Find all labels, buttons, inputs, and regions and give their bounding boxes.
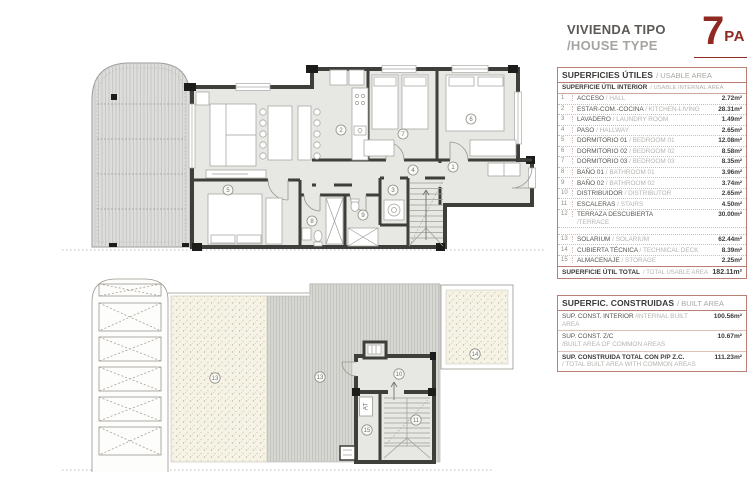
row-name: DORMITORIO 02 / BEDROOM 02	[577, 148, 706, 155]
built-area-table: SUPERFIC. CONSTRUIDAS / BUILT AREA SUP. …	[557, 295, 747, 372]
room-label-living: 2	[336, 125, 346, 135]
row-name: BAÑO 02 / BATHROOM 02	[577, 180, 706, 187]
row-value: 8.58m²	[706, 148, 742, 155]
row-name: SOLARIUM / SOLARIUM	[577, 236, 706, 243]
column	[182, 243, 189, 247]
built-area-row: SUP. CONSTRUIDA TOTAL CON P/P Z.C. / TOT…	[558, 352, 746, 371]
row-name-en: / TECHNICAL DECK	[640, 247, 699, 254]
area-row: 4 PASO / HALLWAY 2.65m²	[558, 126, 746, 137]
row-value: 3.74m²	[706, 180, 742, 187]
tv-cabinet	[206, 170, 266, 178]
area-row: 7 DORMITORIO 03 / BEDROOM 03 8.35m²	[558, 157, 746, 168]
row-name-es: TERRAZA DESCUBIERTA	[577, 211, 653, 218]
area-row: 12 TERRAZA DESCUBIERTA /TERRACE 30.00m²	[558, 210, 746, 228]
row-name-en: / BEDROOM 02	[629, 148, 674, 155]
entry-closet	[488, 163, 520, 176]
row-number: 6	[561, 148, 573, 154]
row-name-es: SUP. CONST. INTERIOR	[562, 313, 634, 320]
row-name-en: / HALL	[606, 95, 626, 102]
area-row: 11 ESCALERAS / STAIRS 4.50m²	[558, 199, 746, 210]
row-number: 9	[561, 180, 573, 186]
terrace-deck	[92, 63, 190, 247]
row-name-es: DORMITORIO 01	[577, 137, 627, 144]
row-number: 12	[561, 211, 573, 217]
room-label-storage: 15	[362, 425, 372, 435]
row-value: 8.39m²	[706, 247, 742, 254]
row-name: DORMITORIO 01 / BEDROOM 01	[577, 137, 706, 144]
unit-number: 7 PA	[702, 14, 745, 48]
usable-area-table-subtitle: SUPERFICIE ÚTIL INTERIOR / USABLE INTERN…	[558, 83, 746, 94]
svg-text:11: 11	[413, 418, 420, 424]
row-name-es: PASO	[577, 127, 594, 134]
row-name-es: DORMITORIO 02	[577, 148, 627, 155]
row-value: 10.67m²	[702, 333, 742, 340]
row-number: 7	[561, 158, 573, 164]
row-name: ESCALERAS / STAIRS	[577, 201, 706, 208]
row-value: 4.50m²	[706, 201, 742, 208]
row-name-en: / BEDROOM 01	[629, 137, 674, 144]
area-row: 6 DORMITORIO 02 / BEDROOM 02 8.58m²	[558, 147, 746, 158]
row-name-en: / KITCHEN-LIVING	[645, 106, 700, 113]
roof-core: AT	[340, 342, 436, 462]
room-label-bathroom2: 9	[358, 210, 368, 220]
room-label-bedroom2: 6	[466, 114, 476, 124]
room-label-bathroom1: 8	[307, 216, 317, 226]
row-name: DORMITORIO 03 / BEDROOM 03	[577, 158, 706, 165]
table-title-es: SUPERFIC. CONSTRUIDAS	[562, 298, 674, 308]
room-label-stairs: 11	[411, 415, 421, 425]
main-floor-plan: 2 7 6 1 4 3 9 8 5	[55, 48, 555, 266]
row-name-es: DISTRIBUIDOR	[577, 190, 623, 197]
row-name: LAVADERO / LAUNDRY ROOM	[577, 116, 706, 123]
solarium-floor-plan: AT 13 13 10 11 14 15	[55, 266, 555, 486]
row-name: SUP. CONST. Z/C /BUILT AREA OF COMMON AR…	[562, 333, 702, 348]
svg-text:10: 10	[396, 372, 403, 378]
row-name: SUP. CONST. INTERIOR /INTERNAL BUILT ARE…	[562, 313, 702, 328]
room-label-hall: 1	[448, 162, 458, 172]
room-label-solarium-paved: 13	[210, 373, 220, 383]
row-number: 10	[561, 190, 573, 196]
row-value: 30.00m²	[706, 211, 742, 218]
row-name-es: BAÑO 02	[577, 180, 604, 187]
row-number: 4	[561, 127, 573, 133]
row-name-es: SOLARIUM	[577, 236, 610, 243]
row-number: 5	[561, 137, 573, 143]
plan-sheet: 2 7 6 1 4 3 9 8 5	[0, 0, 750, 500]
total-label-es: SUPERFICIE ÚTIL TOTAL	[562, 269, 640, 276]
row-number: 8	[561, 169, 573, 175]
row-name-en: / BATHROOM 01	[606, 169, 655, 176]
row-name-es: ACCESO	[577, 95, 604, 102]
row-name-en: / TOTAL BUILT AREA WITH COMMON AREAS	[562, 361, 702, 369]
row-name: ESTAR-COM.-COCINA / KITCHEN-LIVING	[577, 106, 706, 113]
row-name-en: / STORAGE	[621, 257, 656, 264]
washing-machine	[384, 200, 404, 220]
attic-access-label: AT	[363, 403, 370, 411]
row-value: 2.25m²	[706, 257, 742, 264]
house-type-title-en: /HOUSE TYPE	[567, 38, 666, 54]
area-row: 15 ALMACENAJE / STORAGE 2.25m²	[558, 256, 746, 266]
area-row: 8 BAÑO 01 / BATHROOM 01 3.96m²	[558, 168, 746, 179]
room-label-distributor: 10	[394, 369, 404, 379]
usable-area-table-title: SUPERFICIES ÚTILES / USABLE AREA	[558, 68, 746, 83]
room-label-hallway: 4	[408, 165, 418, 175]
row-value: 1.49m²	[706, 116, 742, 123]
row-value: 28.31m²	[706, 106, 742, 113]
column	[109, 243, 117, 247]
row-name-es: BAÑO 01	[577, 169, 604, 176]
row-name-en: / HALLWAY	[596, 127, 629, 134]
area-row: 14 CUBIERTA TÉCNICA / TECHNICAL DECK 8.3…	[558, 245, 746, 256]
usable-area-total-row: SUPERFICIE ÚTIL TOTAL / TOTAL USABLE ARE…	[558, 266, 746, 278]
row-name: ACCESO / HALL	[577, 95, 706, 102]
row-name: BAÑO 01 / BATHROOM 01	[577, 169, 706, 176]
row-value: 111.23m²	[702, 354, 742, 361]
row-number: 14	[561, 247, 573, 253]
row-value: 2.72m²	[706, 95, 742, 102]
row-name: TERRAZA DESCUBIERTA /TERRACE	[577, 211, 706, 226]
area-row: 13 SOLARIUM / SOLARIUM 62.44m²	[558, 234, 746, 246]
svg-text:15: 15	[364, 428, 371, 434]
unit-number-digit: 7	[702, 14, 724, 48]
row-number: 2	[561, 106, 573, 112]
row-value: 2.65m²	[706, 190, 742, 197]
row-name: PASO / HALLWAY	[577, 127, 706, 134]
row-number: 13	[561, 236, 573, 242]
row-name-es: SUP. CONSTRUIDA TOTAL CON P/P Z.C.	[562, 354, 684, 361]
row-value: 12.08m²	[706, 137, 742, 144]
area-row: 9 BAÑO 02 / BATHROOM 02 3.74m²	[558, 178, 746, 189]
row-value: 62.44m²	[706, 236, 742, 243]
row-value: 3.96m²	[706, 169, 742, 176]
dining-table	[260, 106, 320, 160]
row-name-es: CUBIERTA TÉCNICA	[577, 247, 638, 254]
house-type-title-es: VIVIENDA TIPO	[567, 22, 666, 38]
row-name-es: DORMITORIO 03	[577, 158, 627, 165]
svg-text:13: 13	[317, 375, 324, 381]
row-name-en: /BUILT AREA OF COMMON AREAS	[562, 341, 702, 349]
usable-area-rows: 1 ACCESO / HALL 2.72m² 2 ESTAR-COM.-COCI…	[558, 94, 746, 266]
area-row: 3 LAVADERO / LAUNDRY ROOM 1.49m²	[558, 115, 746, 126]
row-name-en: / BEDROOM 03	[629, 158, 674, 165]
area-row: 5 DORMITORIO 01 / BEDROOM 01 12.08m²	[558, 136, 746, 147]
built-area-row: SUP. CONST. Z/C /BUILT AREA OF COMMON AR…	[558, 331, 746, 351]
column	[111, 94, 117, 100]
unit-number-code: PA	[724, 28, 745, 45]
unit-number-underline	[694, 57, 747, 58]
area-row: 2 ESTAR-COM.-COCINA / KITCHEN-LIVING 28.…	[558, 105, 746, 116]
row-name-es: ESCALERAS	[577, 201, 615, 208]
row-number: 11	[561, 201, 573, 207]
table-subtitle-es: SUPERFICIE ÚTIL INTERIOR	[562, 84, 647, 91]
room-label-bedroom3: 7	[398, 129, 408, 139]
bedroom1-bed	[208, 194, 282, 244]
area-row: 1 ACCESO / HALL 2.72m²	[558, 94, 746, 105]
table-title-es: SUPERFICIES ÚTILES	[562, 70, 653, 80]
row-name-es: LAVADERO	[577, 116, 611, 123]
row-name: ALMACENAJE / STORAGE	[577, 257, 706, 264]
svg-text:14: 14	[472, 352, 479, 358]
total-value: 182.11m²	[712, 269, 742, 276]
svg-text:13: 13	[212, 376, 219, 382]
table-title-en: / BUILT AREA	[677, 299, 724, 308]
row-number: 1	[561, 95, 573, 101]
row-name-es: ESTAR-COM.-COCINA	[577, 106, 643, 113]
room-label-solarium-deck: 13	[315, 372, 325, 382]
room-label-bedroom1: 5	[223, 185, 233, 195]
row-name-en: / LAUNDRY ROOM	[613, 116, 669, 123]
table-subtitle-en: / USABLE INTERNAL AREA	[650, 85, 723, 91]
row-name-en: / DISTRIBUTOR	[625, 190, 672, 197]
row-number: 15	[561, 257, 573, 263]
row-name-es: SUP. CONST. Z/C	[562, 333, 613, 340]
table-title-en: / USABLE AREA	[656, 71, 712, 80]
built-area-rows: SUP. CONST. INTERIOR /INTERNAL BUILT ARE…	[558, 311, 746, 371]
row-number: 3	[561, 116, 573, 122]
row-name: DISTRIBUIDOR / DISTRIBUTOR	[577, 190, 706, 197]
row-value: 100.56m²	[702, 313, 742, 320]
row-value: 2.65m²	[706, 127, 742, 134]
row-name-en: / BATHROOM 02	[606, 180, 655, 187]
total-label-en: / TOTAL USABLE AREA	[643, 270, 712, 276]
house-type-header: VIVIENDA TIPO /HOUSE TYPE	[567, 22, 666, 53]
built-area-table-title: SUPERFIC. CONSTRUIDAS / BUILT AREA	[558, 296, 746, 311]
row-name: SUP. CONSTRUIDA TOTAL CON P/P Z.C. / TOT…	[562, 354, 702, 369]
row-value: 8.35m²	[706, 158, 742, 165]
row-name-en: / SOLARIUM	[612, 236, 649, 243]
room-label-technical-deck: 14	[470, 349, 480, 359]
usable-area-table: SUPERFICIES ÚTILES / USABLE AREA SUPERFI…	[557, 67, 747, 279]
row-name-en: /TERRACE	[577, 219, 706, 226]
room-label-laundry: 3	[388, 185, 398, 195]
area-row: 10 DISTRIBUIDOR / DISTRIBUTOR 2.65m²	[558, 189, 746, 200]
built-area-row: SUP. CONST. INTERIOR /INTERNAL BUILT ARE…	[558, 311, 746, 331]
row-name-es: ALMACENAJE	[577, 257, 620, 264]
pergola	[92, 279, 168, 472]
row-name-en: / STAIRS	[617, 201, 643, 208]
row-name: CUBIERTA TÉCNICA / TECHNICAL DECK	[577, 247, 706, 254]
